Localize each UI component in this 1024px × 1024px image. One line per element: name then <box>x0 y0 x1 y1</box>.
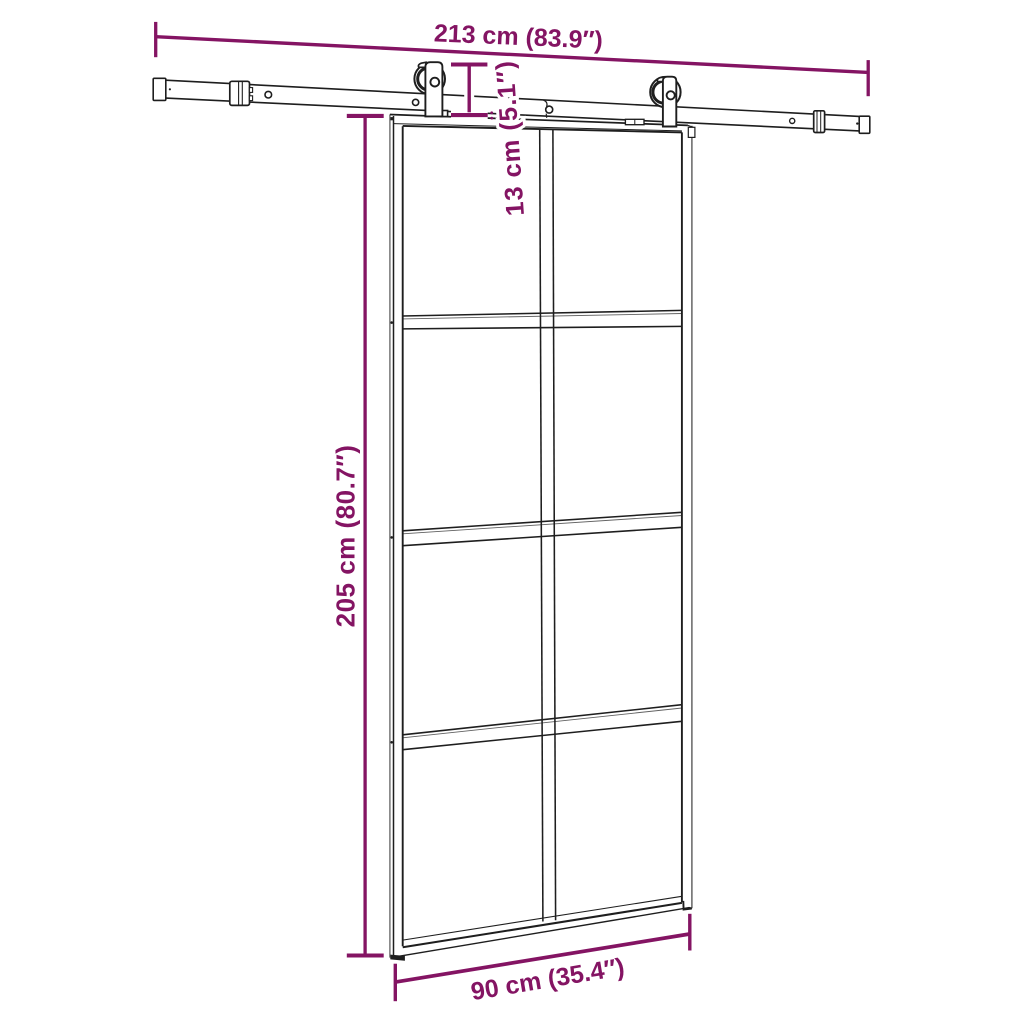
svg-text:205 cm (80.7″): 205 cm (80.7″) <box>331 445 361 628</box>
